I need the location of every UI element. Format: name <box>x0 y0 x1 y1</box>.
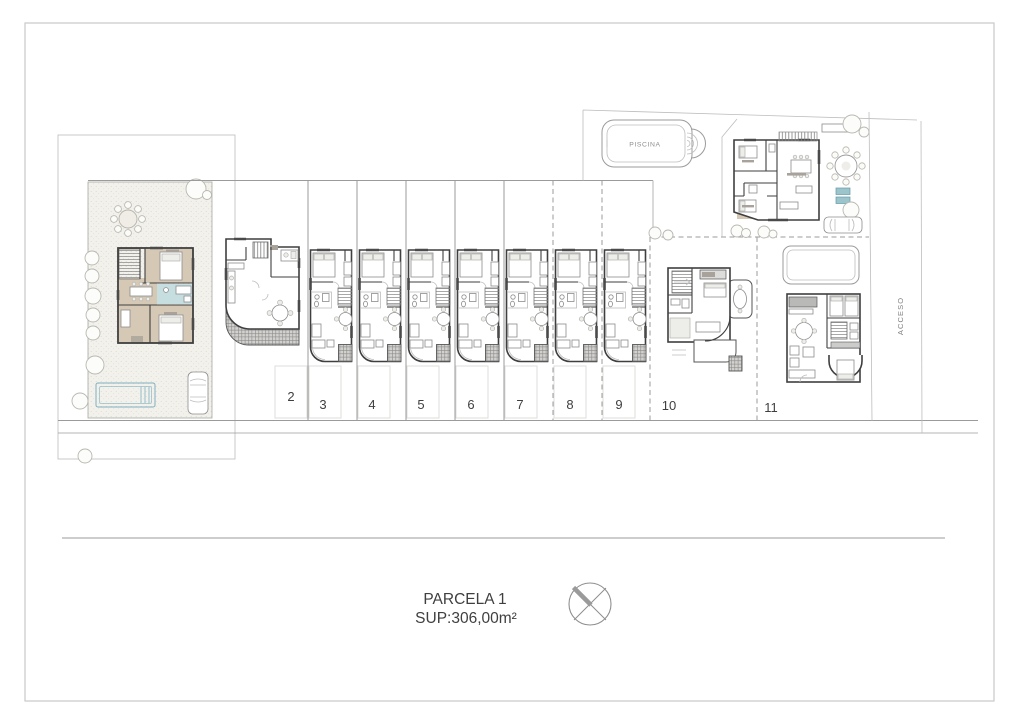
villa-2-terrace <box>822 115 869 218</box>
townhouse-unit-5 <box>409 250 451 362</box>
house-11 <box>787 294 862 382</box>
plot-number-9: 9 <box>615 397 622 412</box>
parcel-area: SUP:306,00m² <box>415 610 517 627</box>
townhouse-row <box>311 250 647 362</box>
north-needle <box>574 588 592 606</box>
parcel-title: PARCELA 1 <box>423 591 506 608</box>
plot-11 <box>783 246 862 382</box>
plot-number-11: 11 <box>764 400 778 415</box>
house-10 <box>668 268 752 371</box>
plot-number-4: 4 <box>368 397 375 412</box>
townhouse-unit-4 <box>360 250 402 362</box>
townhouse-unit-7 <box>507 250 549 362</box>
plot-number-6: 6 <box>467 397 474 412</box>
plot-number-8: 8 <box>566 397 573 412</box>
site-plan-drawing: PISCINA <box>0 0 1024 723</box>
townhouse-unit-3 <box>311 250 353 362</box>
townhouse-unit-9 <box>605 250 647 362</box>
villa-2-floorplan <box>734 132 819 220</box>
bushes <box>649 225 777 240</box>
plot-number-10: 10 <box>662 398 676 413</box>
plot-number-3: 3 <box>319 397 326 412</box>
plot-numbers: 2 3 4 5 6 7 8 9 10 11 <box>287 389 777 415</box>
access-road: ACCESO <box>869 112 922 433</box>
plot-number-2: 2 <box>287 389 294 404</box>
pool-11 <box>783 246 859 284</box>
car-2 <box>824 217 862 233</box>
site-plan-page: PISCINA <box>0 0 1024 723</box>
plot-number-7: 7 <box>516 397 523 412</box>
left-parcel <box>58 135 235 463</box>
villa-1-floorplan <box>118 248 193 343</box>
pool-piscina: PISCINA <box>602 120 706 167</box>
title-block: PARCELA 1 SUP:306,00m² <box>415 591 517 627</box>
townhouse-unit-8 <box>556 250 598 362</box>
corner-house-2 <box>226 239 299 345</box>
north-symbol <box>569 583 611 625</box>
top-right-parcel: PISCINA <box>583 110 917 240</box>
piscina-label: PISCINA <box>629 142 660 149</box>
garden-dining-table <box>111 202 146 237</box>
plot-number-5: 5 <box>417 397 424 412</box>
acceso-label: ACCESO <box>896 297 905 335</box>
townhouse-unit-6 <box>458 250 500 362</box>
car-1 <box>188 372 208 414</box>
